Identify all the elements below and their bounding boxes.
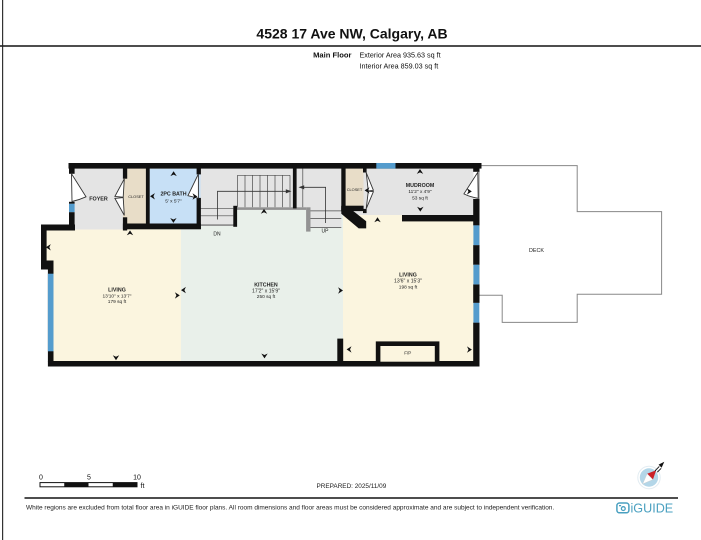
svg-text:179 sq ft: 179 sq ft xyxy=(108,299,127,305)
svg-text:LIVING: LIVING xyxy=(399,272,417,278)
svg-text:F/P: F/P xyxy=(404,351,411,356)
svg-text:2PC BATH: 2PC BATH xyxy=(160,191,186,197)
svg-text:Exterior Area 935.63 sq ft: Exterior Area 935.63 sq ft xyxy=(360,51,441,60)
svg-text:FOYER: FOYER xyxy=(89,197,108,203)
svg-text:ft: ft xyxy=(141,483,145,490)
svg-text:White regions are excluded fro: White regions are excluded from total fl… xyxy=(26,505,554,512)
svg-text:4528 17 Ave NW, Calgary, AB: 4528 17 Ave NW, Calgary, AB xyxy=(256,25,447,41)
svg-text:13'10" x 13'7": 13'10" x 13'7" xyxy=(103,293,132,299)
svg-text:iGUIDE: iGUIDE xyxy=(631,502,674,516)
svg-text:198 sq ft: 198 sq ft xyxy=(399,284,418,290)
svg-text:53 sq ft: 53 sq ft xyxy=(412,196,428,202)
svg-text:PREPARED: 2025/11/09: PREPARED: 2025/11/09 xyxy=(317,483,387,490)
svg-text:0: 0 xyxy=(39,475,43,482)
svg-text:13'6" x 15'3": 13'6" x 15'3" xyxy=(394,279,422,285)
svg-text:10: 10 xyxy=(133,475,141,482)
svg-text:250 sq ft: 250 sq ft xyxy=(257,294,276,300)
svg-text:DECK: DECK xyxy=(529,248,544,254)
svg-text:11'2" x 4'9": 11'2" x 4'9" xyxy=(408,189,432,195)
svg-text:5' x 5'7": 5' x 5'7" xyxy=(165,198,182,204)
svg-text:MUDROOM: MUDROOM xyxy=(406,183,435,189)
svg-text:DN: DN xyxy=(213,231,221,237)
svg-text:17'2" x 15'9": 17'2" x 15'9" xyxy=(252,288,280,294)
svg-text:CLOSET: CLOSET xyxy=(347,187,363,192)
svg-text:5: 5 xyxy=(87,475,91,482)
svg-text:Interior Area 859.03 sq ft: Interior Area 859.03 sq ft xyxy=(360,62,439,71)
svg-text:CLOSET: CLOSET xyxy=(128,194,144,199)
svg-text:Main Floor: Main Floor xyxy=(313,51,351,60)
svg-text:UP: UP xyxy=(322,229,330,235)
svg-text:LIVING: LIVING xyxy=(108,287,126,293)
